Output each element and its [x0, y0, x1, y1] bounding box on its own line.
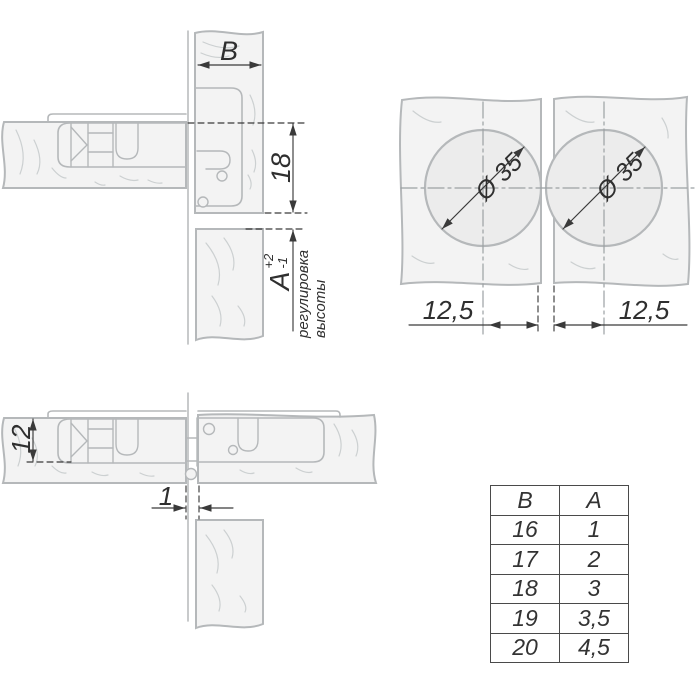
col-header-a: A [560, 486, 629, 516]
cup-depth-label: 12 [7, 413, 35, 465]
dim-door-thickness-label: B [199, 36, 259, 66]
dim-gap-a-label: A +2 -1 [263, 234, 297, 310]
hinge-installation-drawing: B 18 A +2 -1 регулировка высоты Ø 35 Ø 3… [0, 0, 700, 700]
cabinet-panel [2, 122, 186, 188]
tolerance-minus: -1 [276, 254, 290, 269]
door-gap-label: 1 [149, 482, 183, 510]
hinge-knuckle [186, 418, 198, 480]
dimension-table: B A 16 1 17 2 18 3 19 3,5 20 4,5 [490, 485, 629, 663]
open-door-panel [198, 414, 376, 483]
section-view-closed [2, 31, 307, 344]
col-header-b: B [491, 486, 560, 516]
adjustment-line1: регулировка [296, 250, 313, 338]
section-view-open [2, 393, 376, 628]
dim-overlay-label: 18 [266, 136, 296, 200]
height-adjustment-note: регулировка высоты [296, 228, 330, 338]
tolerance-plus: +2 [262, 254, 276, 269]
center-offset-left-label: 12,5 [408, 296, 488, 324]
table-row: 19 3,5 [491, 604, 629, 634]
gap-a-tolerances: +2 -1 [262, 254, 289, 269]
table-row: 17 2 [491, 545, 629, 575]
table-row: 20 4,5 [491, 633, 629, 663]
gap-a-letter: A [266, 272, 294, 291]
table-row: 16 1 [491, 515, 629, 545]
lower-panel [196, 520, 263, 628]
table-row: 18 3 [491, 574, 629, 604]
table-header-row: B A [491, 486, 629, 516]
center-offset-right-label: 12,5 [604, 296, 684, 324]
adjustment-line2: высоты [313, 280, 330, 338]
